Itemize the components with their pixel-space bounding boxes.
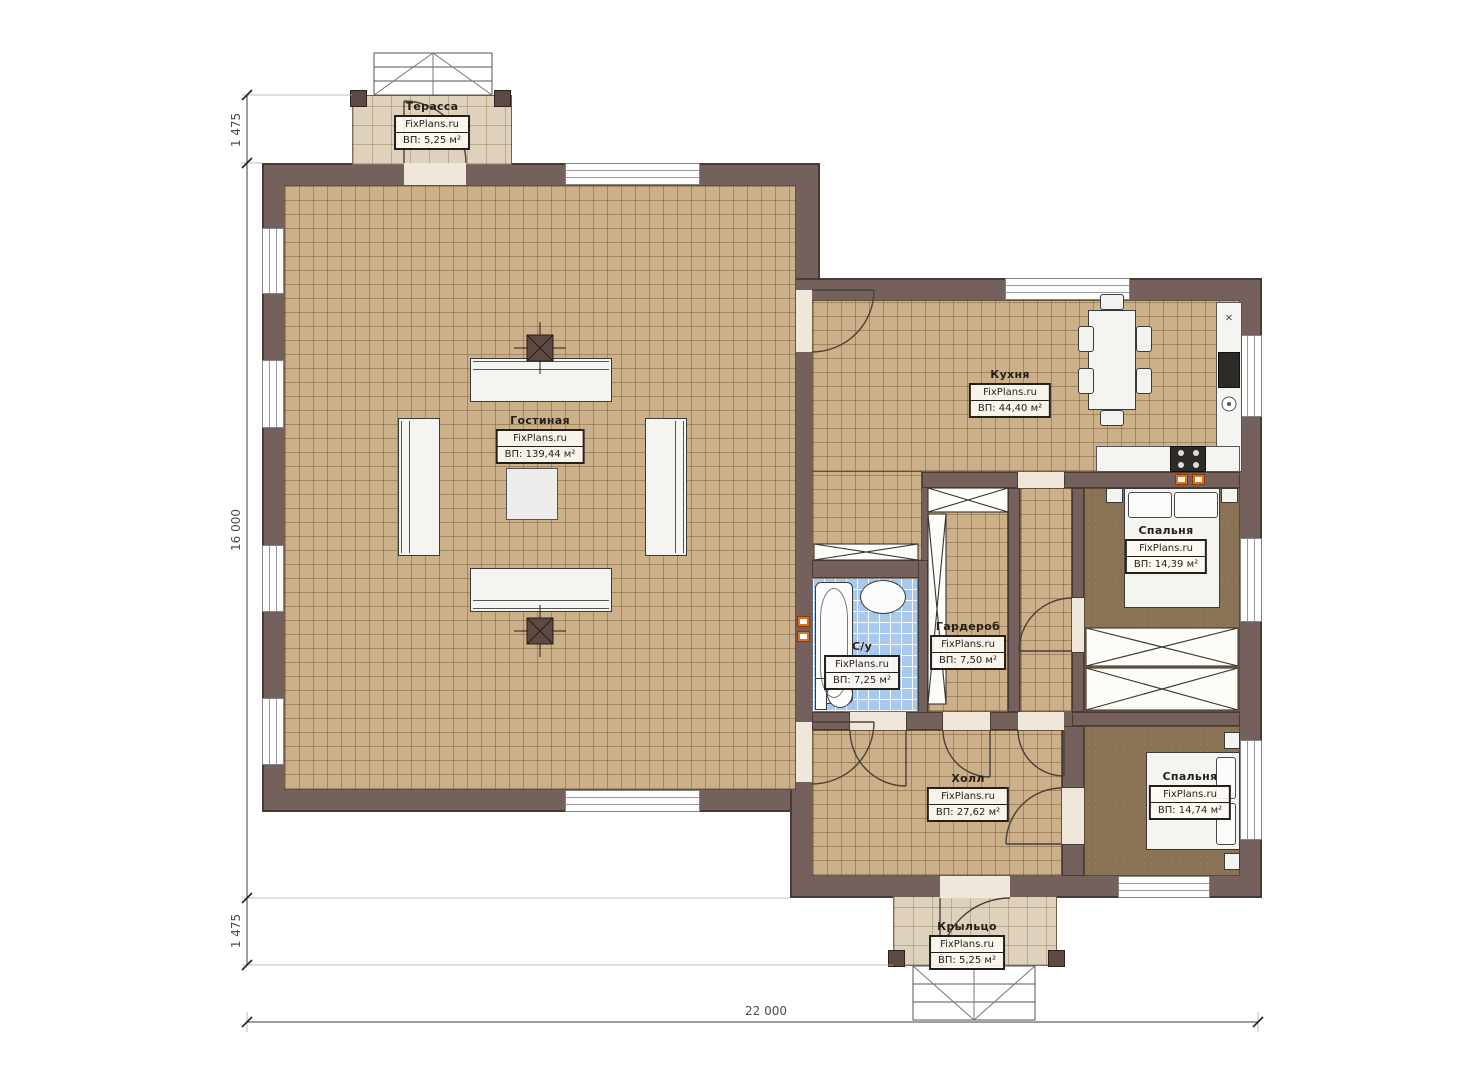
vent-marker [797, 631, 810, 642]
dimension-lines [247, 95, 1258, 1022]
dimension-bottom: 22 000 [745, 1004, 787, 1018]
floor-plan: × [0, 0, 1473, 1080]
wardrobe-cabinet [928, 488, 1008, 512]
door-wardrobe [943, 730, 990, 777]
door-bedroom2 [1006, 788, 1062, 844]
vent-marker [1175, 474, 1188, 485]
room-name: С/у [824, 640, 900, 653]
door-kitchen [812, 290, 874, 352]
column [514, 605, 566, 657]
dimension-ticks [242, 90, 1263, 1027]
room-label-hall: Холл FixPlans.ru ВП: 27,62 м² [927, 772, 1009, 822]
room-area: ВП: 5,25 м² [396, 133, 468, 148]
dimension-left-top: 1 475 [229, 113, 243, 147]
door-corridor [1018, 730, 1064, 776]
brand-watermark: FixPlans.ru [396, 117, 468, 133]
bedroom1-wardrobe [1086, 668, 1238, 710]
porch-steps [913, 966, 1035, 1020]
brand-watermark: FixPlans.ru [931, 937, 1003, 953]
room-label-kitchen: Кухня FixPlans.ru ВП: 44,40 м² [969, 368, 1051, 418]
room-label-terrace: Терасса FixPlans.ru ВП: 5,25 м² [394, 100, 470, 150]
room-area: ВП: 27,62 м² [929, 805, 1007, 820]
room-name: Спальня [1149, 770, 1231, 783]
vent-marker [1192, 474, 1205, 485]
room-label-porch: Крыльцо FixPlans.ru ВП: 5,25 м² [929, 920, 1005, 970]
brand-watermark: FixPlans.ru [971, 385, 1049, 401]
brand-watermark: FixPlans.ru [929, 789, 1007, 805]
room-name: Крыльцо [929, 920, 1005, 933]
corridor-cabinet [814, 544, 918, 560]
room-area: ВП: 5,25 м² [931, 953, 1003, 968]
room-name: Терасса [394, 100, 470, 113]
wardrobe-sliding [928, 514, 946, 704]
kitchen-sink [1222, 397, 1236, 411]
brand-watermark: FixPlans.ru [1127, 541, 1205, 557]
door-hall [812, 722, 874, 784]
room-label-living: Гостиная FixPlans.ru ВП: 139,44 м² [496, 414, 585, 464]
room-area: ВП: 7,25 м² [826, 673, 898, 688]
door-bathroom [850, 730, 906, 786]
room-name: Спальня [1125, 524, 1207, 537]
brand-watermark: FixPlans.ru [498, 431, 583, 447]
room-area: ВП: 14,39 м² [1127, 557, 1205, 572]
room-name: Гардероб [930, 620, 1006, 633]
room-label-bedroom2: Спальня FixPlans.ru ВП: 14,74 м² [1149, 770, 1231, 820]
room-name: Кухня [969, 368, 1051, 381]
door-bedroom1 [1019, 598, 1072, 651]
vent-marker [797, 616, 810, 627]
columns [514, 322, 566, 657]
bedroom1-wardrobe [1086, 628, 1238, 666]
brand-watermark: FixPlans.ru [1151, 787, 1229, 803]
room-name: Гостиная [496, 414, 585, 427]
extension-lines [242, 95, 1258, 1032]
room-area: ВП: 7,50 м² [932, 653, 1004, 668]
room-label-bathroom: С/у FixPlans.ru ВП: 7,25 м² [824, 640, 900, 690]
room-name: Холл [927, 772, 1009, 785]
column [514, 322, 566, 374]
door-arcs [404, 101, 1072, 968]
room-label-wardrobe: Гардероб FixPlans.ru ВП: 7,50 м² [930, 620, 1006, 670]
room-area: ВП: 14,74 м² [1151, 803, 1229, 818]
room-area: ВП: 139,44 м² [498, 447, 583, 462]
plan-overlay [0, 0, 1473, 1080]
terrace-steps [374, 53, 492, 95]
room-area: ВП: 44,40 м² [971, 401, 1049, 416]
brand-watermark: FixPlans.ru [932, 637, 1004, 653]
brand-watermark: FixPlans.ru [826, 657, 898, 673]
dimension-left-main: 16 000 [229, 509, 243, 551]
stove-burners [1178, 450, 1199, 468]
room-label-bedroom1: Спальня FixPlans.ru ВП: 14,39 м² [1125, 524, 1207, 574]
dimension-left-bottom: 1 475 [229, 914, 243, 948]
